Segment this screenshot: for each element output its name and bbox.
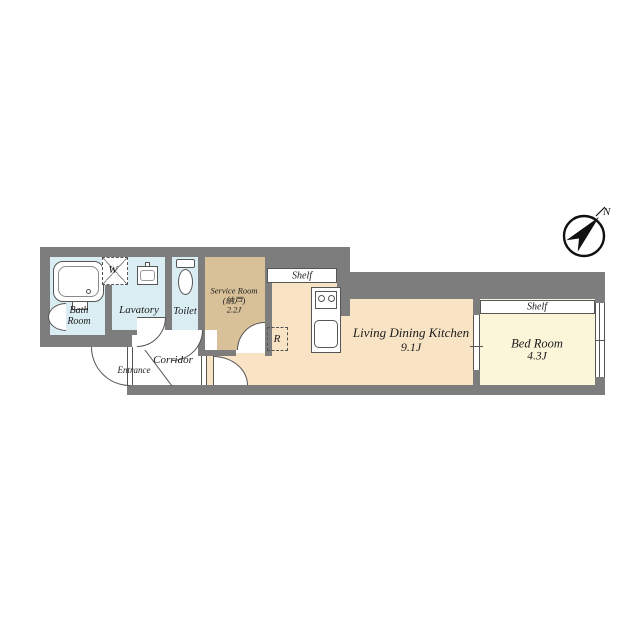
lavatory-label: Lavatory <box>119 304 159 316</box>
bedroom-label-line1: Bed Room <box>511 337 563 351</box>
wall-bottom-under-bath <box>40 335 132 347</box>
stove-burner-left <box>318 295 325 302</box>
wall-divider-stub-bottom <box>473 370 480 385</box>
stove-burner-right <box>328 295 335 302</box>
sliding-door-tick <box>470 346 483 347</box>
wall-top-right-section <box>348 272 605 299</box>
bathtub-drain <box>86 289 91 294</box>
wall-divider-stub-top <box>473 299 480 315</box>
floor-plan: Shelf Shelf W R Bath Room Lavatory Toile… <box>0 0 640 640</box>
bathtub-inner <box>58 266 99 297</box>
kitchen-shelf-label: Shelf <box>292 270 312 281</box>
ldk-label-line2: 9.1J <box>353 341 469 354</box>
bedroom-window-tick <box>595 340 605 341</box>
bath-room-label-line2: Room <box>67 316 90 327</box>
kitchen-sink <box>314 320 338 348</box>
wall-under-lavatory <box>112 330 137 335</box>
ldk-label-line1: Living Dining Kitchen <box>353 326 469 341</box>
toilet-bowl <box>178 269 193 295</box>
toilet-label: Toilet <box>173 306 197 318</box>
entrance-label: Entrance <box>118 365 151 375</box>
wall-lavatory-toilet <box>165 247 172 330</box>
toilet-tank <box>176 259 195 268</box>
service-room-label-line3: 2.2J <box>211 306 258 316</box>
service-room-label: Service Room (納戸) 2.2J <box>211 287 258 316</box>
bedroom-label-line2: 4.3J <box>511 351 563 364</box>
corridor-ldk-door <box>201 356 207 385</box>
wall-bottom <box>127 385 605 395</box>
compass-north-label: N <box>602 206 611 218</box>
washing-machine-label: W <box>108 264 117 276</box>
wall-left <box>40 247 50 347</box>
refrigerator-label: R <box>274 333 281 345</box>
bedroom-shelf-label: Shelf <box>527 301 547 312</box>
ldk-bedroom-sliding-door <box>473 315 480 370</box>
bath-room-label: Bath Room <box>67 305 90 327</box>
bedroom-label: Bed Room 4.3J <box>511 337 563 364</box>
corridor-label: Corridor <box>153 354 193 366</box>
bath-room-label-line1: Bath <box>67 305 90 316</box>
north-compass-icon: N <box>558 202 618 262</box>
lavatory-sink-basin <box>140 270 155 281</box>
ldk-label: Living Dining Kitchen 9.1J <box>353 326 469 354</box>
